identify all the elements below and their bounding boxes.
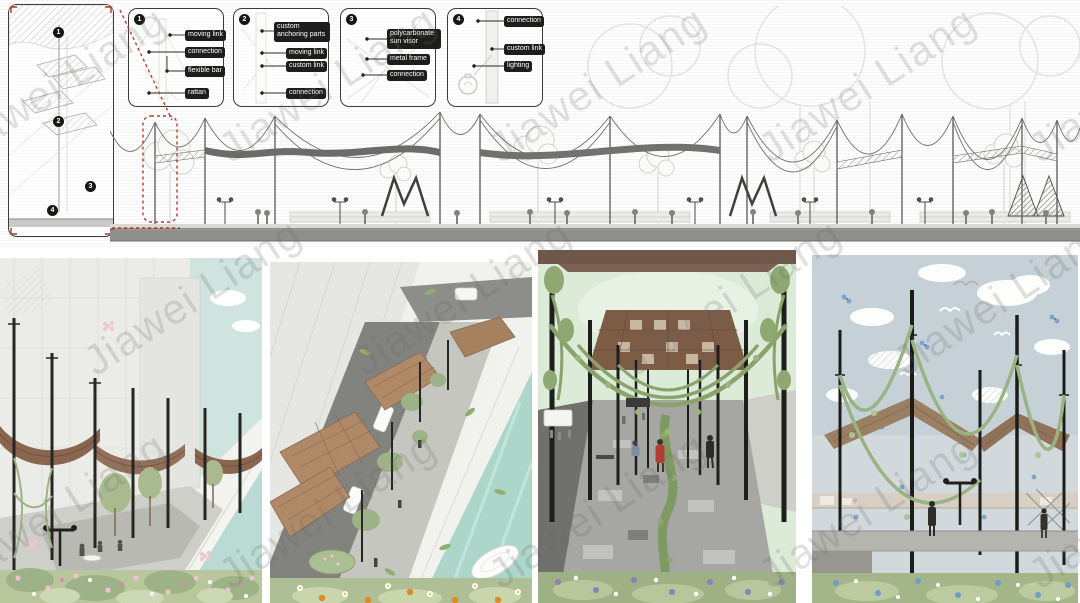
presentation-board: 1 2 3 4 1 moving link connection flexibl… [0, 0, 1080, 603]
detail-callout-annotation [0, 0, 1080, 250]
rendering-walkway-vine-canopy [538, 250, 796, 603]
rendering-aerial-canal-view [270, 262, 532, 603]
rendering-sail-canopy-sky [812, 255, 1078, 603]
rendering-street-canal-perspective [0, 258, 262, 603]
